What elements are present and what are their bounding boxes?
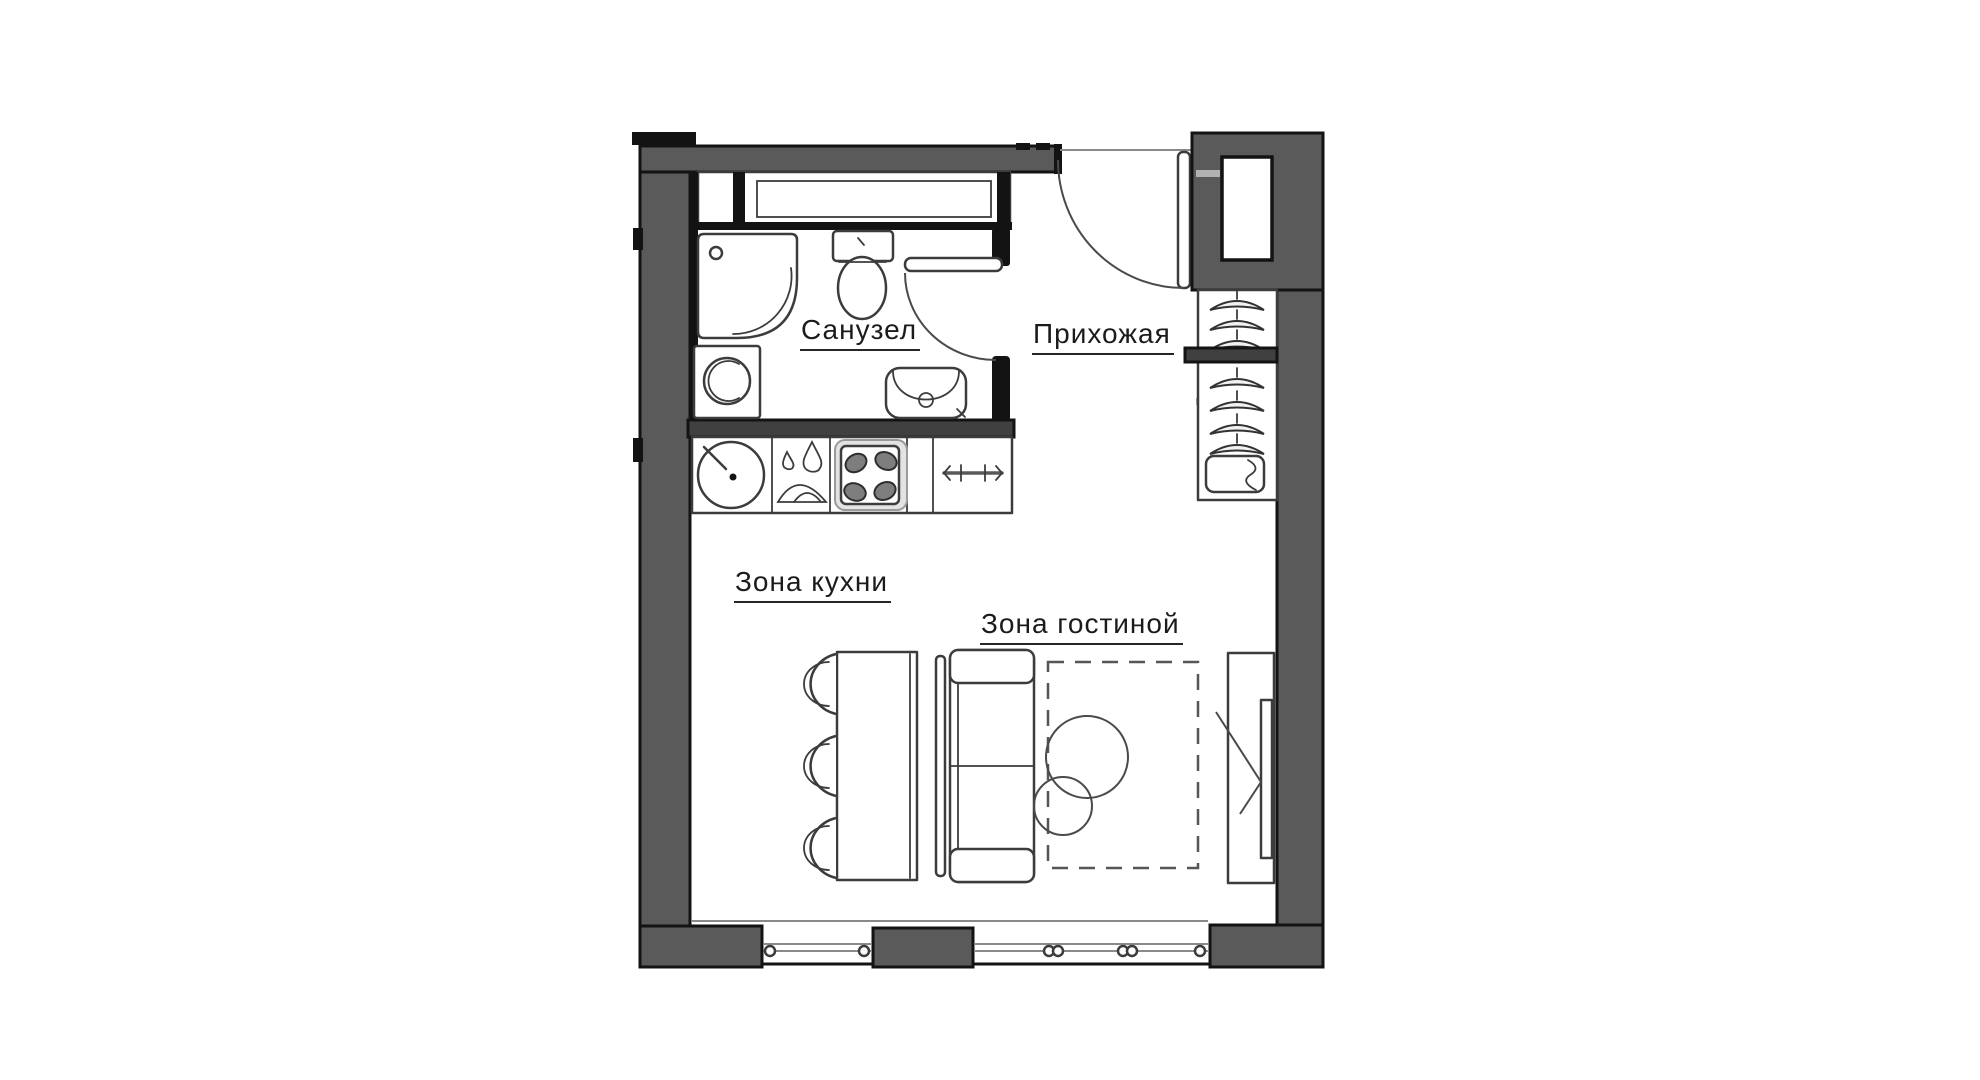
wall-joint-mark <box>633 228 643 250</box>
bathroom <box>688 172 1014 437</box>
hallway-wardrobe <box>1185 290 1277 500</box>
bathroom-label: Санузел <box>800 314 920 351</box>
top-wall <box>640 146 1060 172</box>
wall-joint-mark <box>632 132 696 145</box>
door-swing-arc <box>1058 160 1184 288</box>
wardrobe-shelf <box>1185 348 1277 362</box>
bottom-wall-pier <box>873 928 973 967</box>
toilet-icon <box>833 231 893 319</box>
tv-console-icon <box>1216 653 1274 883</box>
overhead-cabinet <box>698 172 1010 228</box>
wall-joint-mark <box>633 438 643 462</box>
shower-icon <box>698 234 797 338</box>
chair-icon <box>804 736 836 796</box>
window-icon <box>973 944 1210 964</box>
hob-icon <box>835 440 907 510</box>
bottom-wall-left <box>640 926 762 967</box>
hallway-label: Прихожая <box>1032 318 1174 355</box>
left-wall <box>640 140 690 930</box>
washing-machine-icon <box>694 346 760 418</box>
living-label: Зона гостиной <box>980 608 1183 645</box>
kitchen-counter <box>692 437 1012 513</box>
shower-drain <box>710 247 722 259</box>
floor-plan-drawing <box>0 0 1980 1080</box>
entrance-door-icon <box>1058 152 1190 288</box>
bottom-wall-right <box>1210 925 1323 967</box>
window-icon <box>762 944 873 964</box>
rug-outline <box>1048 662 1198 868</box>
kitchen-label: Зона кухни <box>734 566 891 603</box>
dining-table <box>837 652 917 880</box>
wall-joint-mark <box>1036 143 1050 150</box>
wall-joint-mark <box>1016 143 1030 150</box>
floor-plan-canvas: Санузел Прихожая Зона кухни Зона гостино… <box>0 0 1980 1080</box>
chair-icon <box>804 654 836 714</box>
storage-box-icon <box>1206 456 1264 492</box>
tv-icon <box>1261 700 1272 858</box>
bathroom-sink-icon <box>886 368 966 418</box>
chair-icon <box>804 818 836 878</box>
living-area <box>804 650 1274 883</box>
sofa-icon <box>936 650 1034 882</box>
